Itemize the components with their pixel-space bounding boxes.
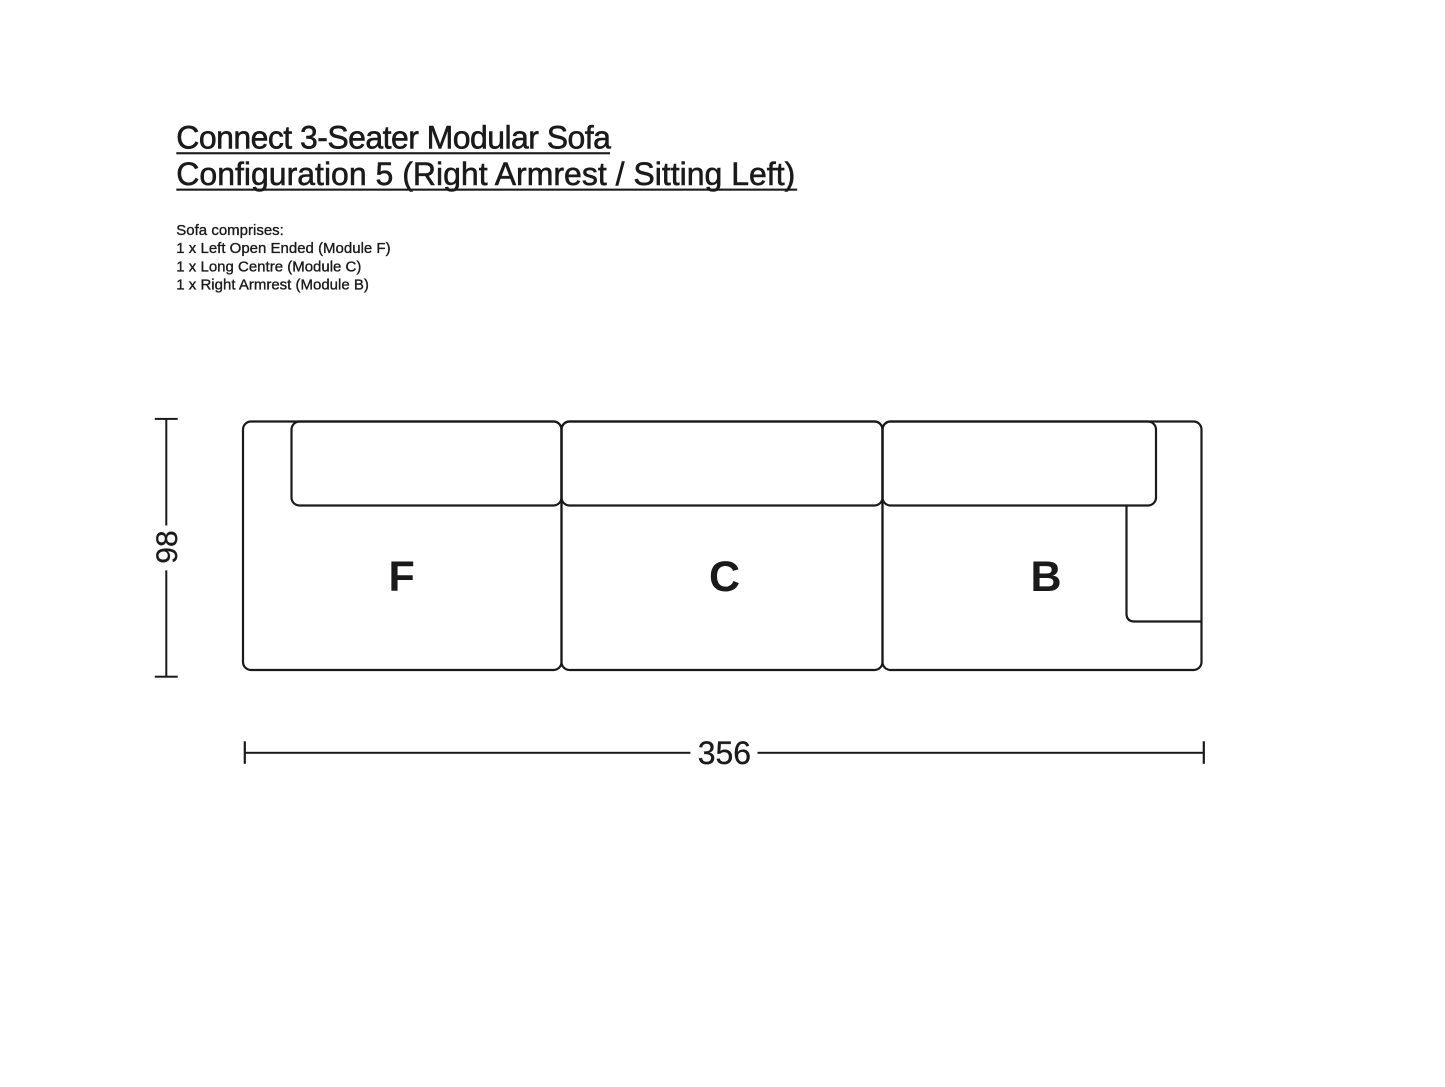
svg-text:C: C <box>709 553 740 601</box>
svg-text:B: B <box>1030 553 1061 601</box>
svg-text:Configuration 5 (Right Armrest: Configuration 5 (Right Armrest / Sitting… <box>176 156 795 192</box>
svg-text:Sofa comprises:: Sofa comprises: <box>176 222 284 239</box>
svg-text:F: F <box>388 553 414 601</box>
svg-text:1 x Right Armrest (Module B): 1 x Right Armrest (Module B) <box>176 277 369 294</box>
svg-text:Connect 3-Seater Modular Sofa: Connect 3-Seater Modular Sofa <box>176 120 611 156</box>
svg-text:1 x Left Open Ended (Module F): 1 x Left Open Ended (Module F) <box>176 240 390 257</box>
svg-text:98: 98 <box>151 530 184 563</box>
svg-text:356: 356 <box>698 735 751 771</box>
svg-text:1 x Long Centre (Module C): 1 x Long Centre (Module C) <box>176 258 361 275</box>
